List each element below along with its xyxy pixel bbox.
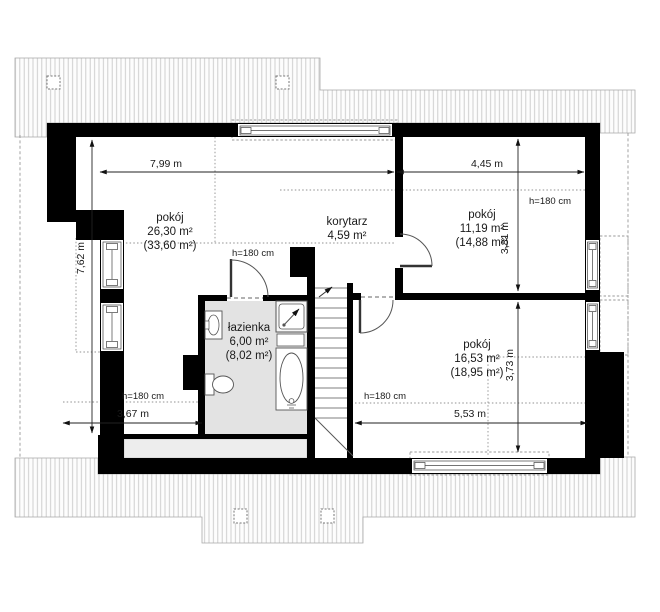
room-area: 26,30 m² <box>147 226 193 238</box>
stair-wall-right <box>347 283 353 474</box>
dim-label: 3,73 m <box>504 349 516 381</box>
room-label-bathroom: łazienka 6,00 m² (8,02 m²) <box>226 322 273 362</box>
room-area: 4,59 m² <box>328 230 367 242</box>
room-area: 16,53 m² <box>454 353 500 365</box>
stair-wall-left <box>307 247 315 474</box>
wall-divider-horizontal <box>395 293 600 300</box>
chimney-block <box>290 247 307 277</box>
window-north <box>238 124 392 136</box>
room-roof-area: (33,60 m²) <box>143 240 196 252</box>
washbasin-fixture <box>205 311 222 339</box>
wall-divider-vertical-lower <box>395 268 403 296</box>
room-roof-area: (18,95 m²) <box>450 367 503 379</box>
bathroom-shelf <box>277 334 304 346</box>
room-name: pokój <box>468 209 496 221</box>
roof-vent-icon <box>321 509 334 523</box>
dim-label: 7,99 m <box>150 158 182 170</box>
wall-east-pier <box>600 352 624 458</box>
height-label: h=180 cm <box>122 391 164 402</box>
room-roof-area: (14,88 m²) <box>455 237 508 249</box>
dim-label: 4,45 m <box>471 158 503 170</box>
room-name: pokój <box>463 339 491 351</box>
toilet-fixture <box>205 374 234 395</box>
roof-vent-icon <box>47 76 60 89</box>
knee-wall-strip <box>124 439 307 458</box>
window-south <box>412 459 547 473</box>
wall-divider-vertical <box>395 123 403 237</box>
window-west-1 <box>101 240 123 289</box>
height-label: h=180 cm <box>232 248 274 259</box>
dim-label: 3,67 m <box>117 408 149 420</box>
window-east-1 <box>586 240 599 290</box>
room-name: pokój <box>156 212 184 224</box>
roof-vent-icon <box>276 76 289 89</box>
room-name: korytarz <box>327 216 368 228</box>
height-label: h=180 cm <box>529 196 571 207</box>
wall-east <box>585 123 600 458</box>
dim-label: 7,62 m <box>75 242 87 274</box>
height-label: h=180 cm <box>364 391 406 402</box>
room-area: 11,19 m² <box>460 223 505 235</box>
room-roof-area: (8,02 m²) <box>226 350 273 362</box>
window-west-2 <box>101 303 123 351</box>
chimney-block-bathroom <box>183 355 203 390</box>
dim-label: 5,53 m <box>454 408 486 420</box>
floor-plan-svg: 7,99 m 4,45 m 7,62 m 3,81 m 3,73 m 3,67 … <box>0 0 660 612</box>
roof-vent-icon <box>234 509 247 523</box>
wall-west-upper <box>47 123 76 222</box>
room-area: 6,00 m² <box>230 336 269 348</box>
window-east-2 <box>586 302 599 350</box>
shower-fixture <box>276 301 307 332</box>
wall-west-jog <box>76 210 124 240</box>
bathtub-fixture <box>276 348 307 410</box>
room-name: łazienka <box>228 322 271 334</box>
knee-wall-line <box>124 434 307 439</box>
wall-divider-horizontal-nib <box>353 293 361 300</box>
